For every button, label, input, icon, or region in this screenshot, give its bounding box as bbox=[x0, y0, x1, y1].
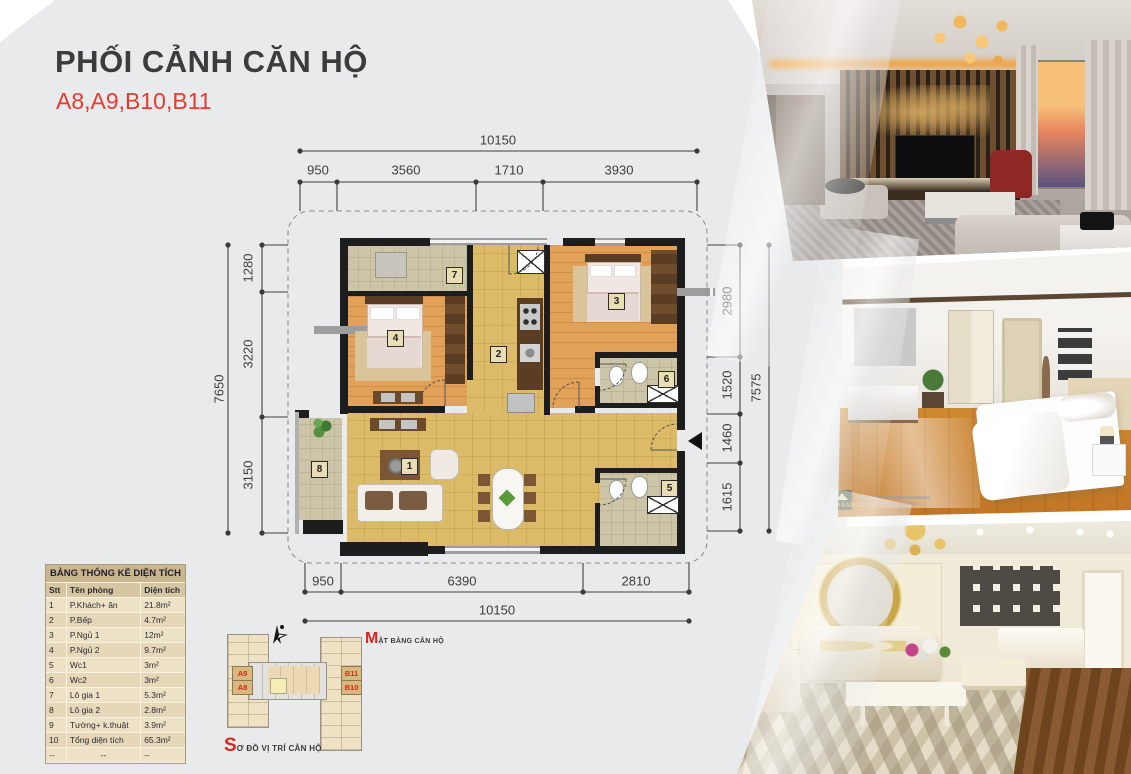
table-row: 1P.Khách+ ăn21.8m² bbox=[46, 598, 185, 613]
table-row: 3P.Ngủ 112m² bbox=[46, 628, 185, 643]
area-statistics-table: BẢNG THỐNG KÊ DIỆN TÍCH Stt Tên phòng Di… bbox=[45, 564, 186, 764]
highlight-cell-yellow bbox=[270, 678, 287, 694]
unit-cell-b11: B11 bbox=[341, 666, 362, 681]
table-row: 7Lô gia 15.3m² bbox=[46, 688, 185, 703]
room-tag-living: 1 bbox=[401, 458, 418, 475]
north-compass-icon bbox=[264, 624, 290, 652]
unit-cell-a9: A9 bbox=[232, 666, 253, 681]
brochure-page: THÀNH ĐẠT PHỐI CẢNH CĂN HỘ A8,A9,B10,B11 bbox=[0, 0, 1131, 774]
apartment-floor-plan: 1 2 3 4 5 6 7 8 bbox=[295, 236, 690, 558]
table-row: 4P.Ngủ 29.7m² bbox=[46, 643, 185, 658]
header-stt: Stt bbox=[46, 583, 67, 597]
building-position-diagram: A9 A8 B11 B10 SƠ ĐỒ VỊ TRÍ CĂN HỘ bbox=[220, 622, 410, 762]
table-row: 8Lô gia 22.8m² bbox=[46, 703, 185, 718]
room-tag-wc2: 6 bbox=[658, 371, 675, 388]
caption-rest-text: Ơ ĐỒ VỊ TRÍ CĂN HỘ bbox=[237, 744, 322, 753]
room-tag-loggia-2: 8 bbox=[311, 461, 328, 478]
unit-cell-a8: A8 bbox=[232, 680, 253, 695]
room-tag-wc1: 5 bbox=[661, 480, 678, 497]
table-row: 9Tường+ k.thuật3.9m² bbox=[46, 718, 185, 733]
room-tag-kitchen: 2 bbox=[490, 346, 507, 363]
area-table-header: Stt Tên phòng Diện tích bbox=[46, 583, 185, 598]
site-diagram-caption: SƠ ĐỒ VỊ TRÍ CĂN HỘ bbox=[224, 735, 322, 757]
table-row-total: 10Tổng diện tích65.3m² bbox=[46, 733, 185, 748]
door-swing-arcs bbox=[295, 236, 690, 558]
header-room: Tên phòng bbox=[67, 583, 141, 597]
caption-lead-letter: S bbox=[224, 735, 237, 756]
area-table-title: BẢNG THỐNG KÊ DIỆN TÍCH bbox=[46, 565, 185, 583]
room-tag-bedroom-1: 3 bbox=[608, 293, 625, 310]
table-row-empty: ------ bbox=[46, 748, 185, 763]
table-row: 5Wc13m² bbox=[46, 658, 185, 673]
room-tag-bedroom-2: 4 bbox=[387, 330, 404, 347]
header-area: Diện tích bbox=[141, 583, 185, 597]
unit-cell-b10: B10 bbox=[341, 680, 362, 695]
table-row: 2P.Bếp4.7m² bbox=[46, 613, 185, 628]
room-tag-loggia-1: 7 bbox=[446, 267, 463, 284]
table-row: 6Wc23m² bbox=[46, 673, 185, 688]
